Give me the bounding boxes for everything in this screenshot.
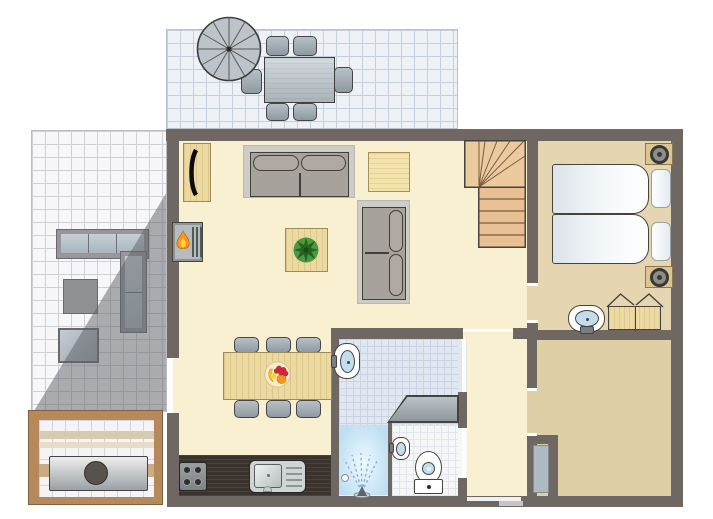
stove [179,462,207,491]
wall-bottom [167,496,683,507]
sofa-second [357,200,410,304]
kitchen-sink [249,460,306,493]
wardrobe-divider [635,307,636,331]
sofa-two-seat [243,145,355,198]
dining-chair [296,337,321,353]
drainer-line [286,479,302,481]
bedroom-door-opening [527,283,538,323]
burner [183,466,191,474]
seat-divider [299,173,301,196]
terrace-chair [334,67,353,93]
vent-line [200,227,202,257]
basin-dot [586,318,589,321]
pillow [651,222,671,261]
flush-button [427,485,431,489]
door-tick [527,320,538,323]
sofa-cushion [389,210,403,252]
toilet-dot [427,467,431,471]
vent-line [196,227,198,257]
basin-bowl [340,350,355,373]
fruit-bowl-icon [264,361,291,388]
dining-chair [234,400,259,418]
nightstand [645,143,673,165]
burner [194,478,202,486]
plant-icon [292,236,320,264]
sofa-cushion [301,155,346,171]
sauna-bench-stripe [39,442,154,448]
sofa-cushion [253,155,299,171]
drainer-line [286,485,302,487]
lamp-dot [657,275,662,280]
hot-tub-opening [84,461,108,485]
wall-right [671,129,683,507]
drain-dot [267,474,270,477]
cushion [89,234,117,253]
dining-chair [234,337,259,353]
terrace-chair [293,103,317,121]
door-tick [527,283,538,286]
basin-tap [580,326,594,334]
wall-closet-stub-h [532,435,558,444]
dining-chair [266,400,291,418]
terrace-dining-table [264,57,335,103]
terrace-door-threshold [167,358,173,413]
sink-basin [254,464,282,488]
door-tick [462,428,466,478]
sauna-floor [39,420,154,497]
front-door [499,501,523,506]
wardrobe-open-doors-icon [606,291,664,308]
parasol-icon [196,16,262,82]
dining-chair [266,337,291,353]
fireplace [172,222,203,262]
hot-tub [49,456,148,491]
bed-duvet [552,214,649,264]
sauna-cabin [28,410,163,505]
grey-door-leaf [533,445,549,493]
bed-duvet [552,164,649,214]
sink-tap [263,486,272,492]
seat-divider [365,252,389,254]
drainer-line [286,467,302,469]
sauna-bench-stripe [39,431,154,439]
sofa-seat [250,152,349,197]
flame-icon [175,230,191,252]
side-terrace [31,130,167,412]
wall-living-bedroom [527,141,538,283]
terrace-chair [293,36,317,56]
toilet-cistern [414,479,443,494]
cushion [61,234,89,253]
side-table [368,152,410,192]
floor-plan-canvas [0,0,713,519]
door-tick [527,388,537,391]
tv-icon [187,147,199,198]
sofa-cushion [389,254,403,296]
door-tick [527,433,537,436]
lamp-icon [650,268,669,287]
burner [183,478,191,486]
wall-toilet-left [388,422,392,496]
lamp-dot [657,152,662,157]
vent-line [192,227,194,257]
toilet-inner [422,462,435,475]
dining-chair [296,400,321,418]
nightstand [645,266,673,288]
door-tick [462,339,466,392]
wardrobe [608,306,661,330]
burner [194,466,202,474]
terrace-shadow-overlay [32,131,166,411]
wall-bedroom-bottom [527,330,671,340]
wall-closet-stub-v [548,444,558,496]
wall-top [166,129,683,141]
basin-tap [331,355,337,368]
washbasin [334,343,360,379]
basin-dot [347,361,350,364]
lamp-icon [650,145,669,164]
sofa-seat [362,207,406,300]
small-washbasin [392,437,410,460]
staircase [464,140,526,248]
basin-bowl [575,310,599,327]
terrace-chair [266,103,289,121]
ottoman [63,279,98,314]
terrace-chair [266,36,289,56]
pillow [651,169,671,208]
floor-drain [341,474,349,482]
basin-bowl [396,442,406,456]
wall-left [167,129,179,507]
drainer-line [286,473,302,475]
door-tick [463,329,513,332]
room2-door-opening [527,388,537,436]
basin-tap [389,443,394,453]
